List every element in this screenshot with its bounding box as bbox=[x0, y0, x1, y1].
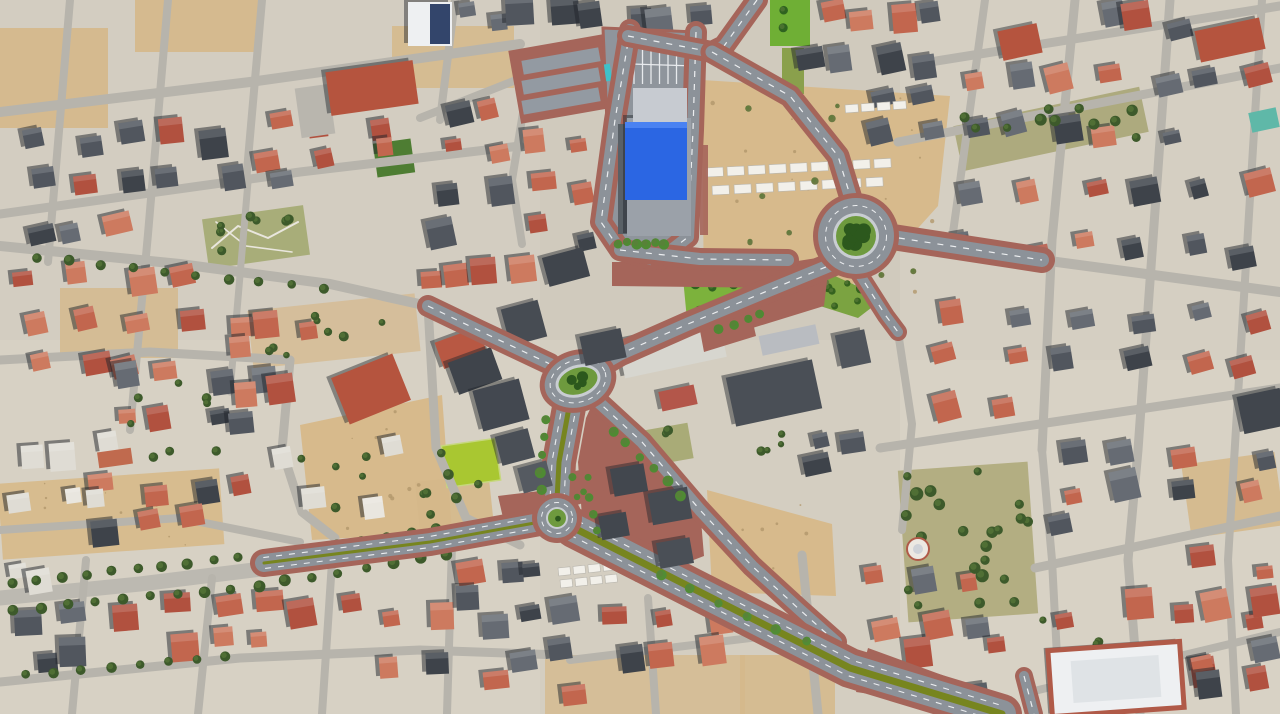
roundabout-south bbox=[532, 493, 582, 543]
blue-white-building bbox=[430, 4, 450, 44]
render-road bbox=[550, 401, 577, 501]
green-lot bbox=[770, 0, 810, 46]
render-road bbox=[1024, 676, 1034, 714]
aerial-city-map bbox=[0, 0, 1280, 714]
roundabout-east bbox=[813, 193, 899, 279]
blue-roof-building bbox=[625, 122, 687, 200]
screenshot-root bbox=[0, 0, 1280, 714]
render-road bbox=[620, 250, 788, 260]
